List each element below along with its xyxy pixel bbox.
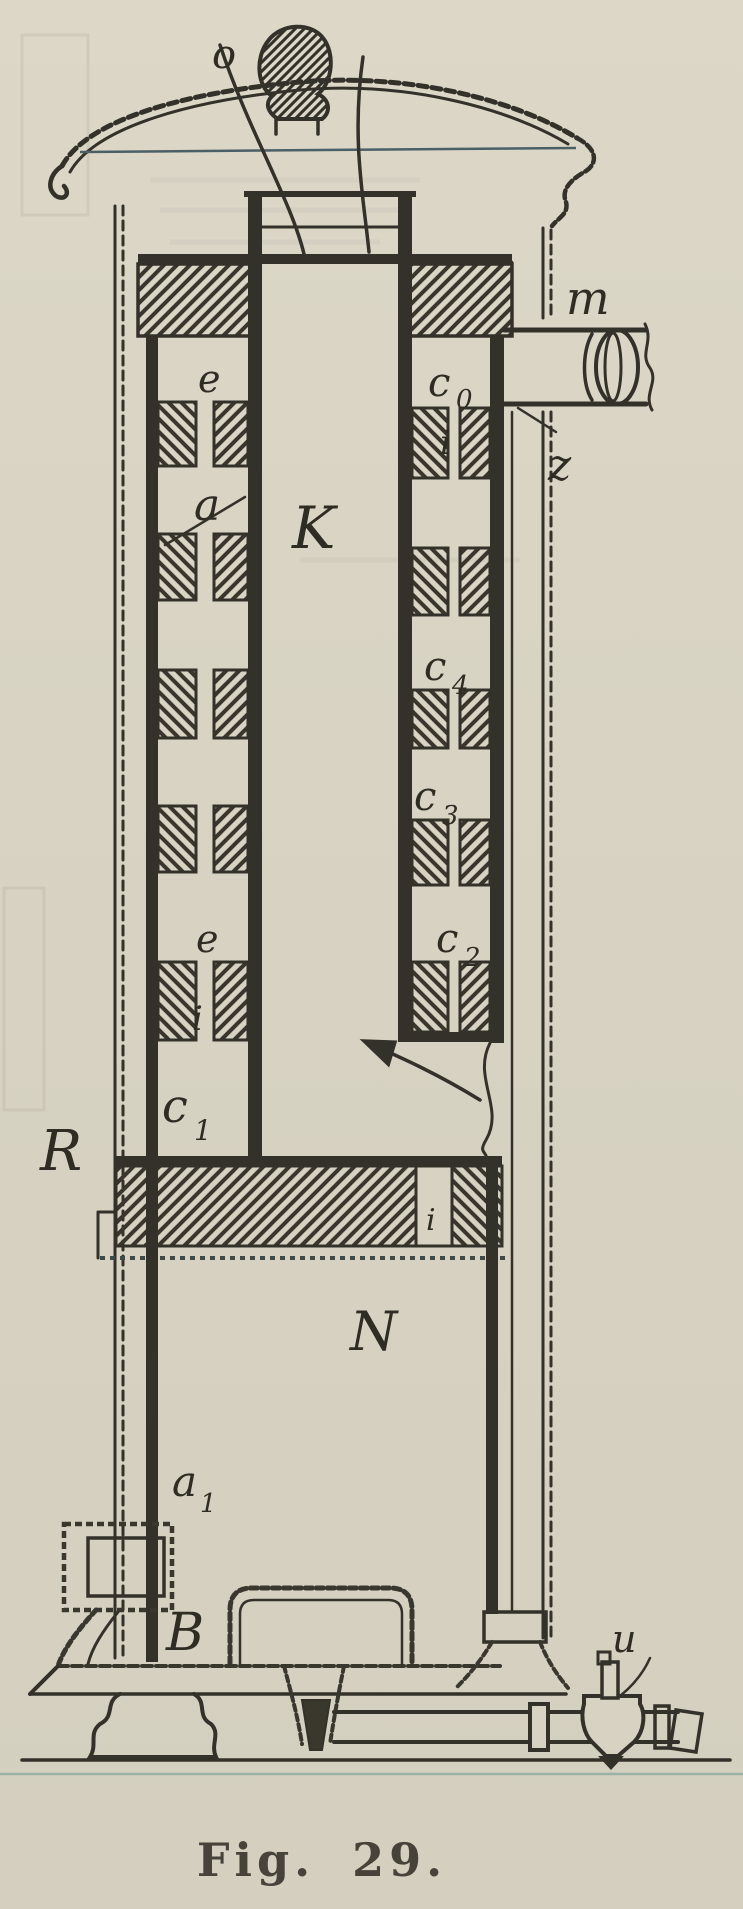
label-o: o [212, 32, 236, 78]
label-i-plate: i [426, 1203, 436, 1238]
label-u: u [612, 1617, 636, 1661]
label-b: B [165, 1603, 204, 1663]
label-e-top: e [198, 357, 221, 401]
svg-text:0: 0 [456, 385, 473, 415]
scanned-page: o K [0, 0, 743, 1909]
svg-text:c: c [414, 774, 436, 820]
svg-text:4: 4 [451, 671, 469, 701]
svg-text:c: c [428, 360, 450, 406]
divider-plate [98, 1156, 506, 1258]
label-i-right: i [440, 423, 451, 463]
label-k: K [291, 494, 339, 562]
svg-text:c: c [436, 916, 458, 962]
label-r: R [39, 1119, 82, 1184]
svg-text:1: 1 [200, 1489, 217, 1519]
pipe-flange [530, 1704, 548, 1750]
svg-text:a: a [172, 1457, 197, 1506]
figure-caption: Fig. 29. [197, 1833, 447, 1887]
label-e-mid: e [196, 917, 219, 961]
svg-text:c: c [162, 1079, 188, 1133]
lid-knob [259, 27, 330, 119]
label-i-left: i [192, 999, 203, 1039]
valve-stem [602, 1662, 618, 1698]
label-a: a [194, 480, 220, 531]
svg-text:1: 1 [194, 1114, 212, 1147]
label-m: m [566, 271, 610, 325]
svg-text:c: c [424, 644, 446, 690]
svg-text:2: 2 [463, 943, 481, 973]
label-z: z [547, 440, 572, 491]
figure-29-diagram: o K [0, 0, 743, 1909]
svg-text:3: 3 [442, 801, 459, 831]
label-n: N [348, 1300, 399, 1363]
